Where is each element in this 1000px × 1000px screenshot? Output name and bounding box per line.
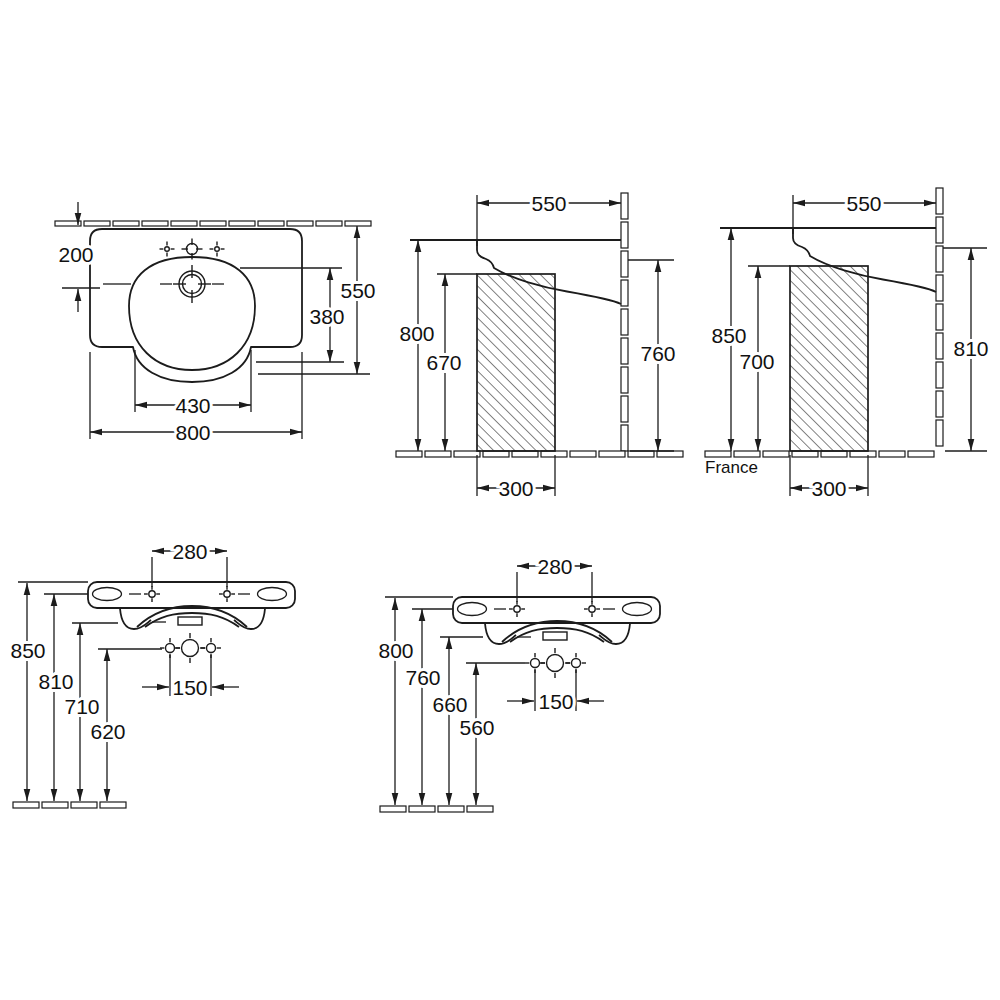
dim-connection-height-620: 620 [90,649,162,801]
dim-label-800: 800 [378,639,413,662]
syphon-space-hatch [790,266,868,451]
dim-label-550: 550 [340,279,375,302]
dim-label-150: 150 [172,676,207,699]
sink-front-body [453,597,660,623]
fixing-hole-right-icon [219,586,235,602]
dim-label-560: 560 [459,716,494,739]
dim-label-810: 810 [953,337,988,360]
dim-label-760: 760 [640,342,675,365]
view-top-plan: 200 380 550 430 800 [55,202,376,444]
dim-label-850: 850 [711,324,746,347]
dim-depth-550: 550 [477,192,621,247]
france-region-label: France [705,458,758,477]
view-side-section: 550 800 670 760 300 [396,192,683,500]
view-front-high: 280 850 810 710 620 150 [10,540,295,809]
syphon-space-hatch [477,274,555,451]
dim-label-810: 810 [38,670,73,693]
dim-back-height-810: 810 [943,248,989,451]
view-side-section-france: 550 850 700 810 300 France [705,188,989,500]
dim-label-280: 280 [172,540,207,563]
drain-boss [543,632,567,640]
dim-connection-height-560: 560 [459,663,525,805]
dim-label-200: 200 [58,243,93,266]
overflow-slot-left [458,603,487,616]
overflow-slot-left [93,588,122,601]
dim-front-height-850: 850 [711,228,746,451]
dim-label-660: 660 [432,693,467,716]
drain-boss [178,617,202,625]
dim-service-space-300: 300 [477,455,555,500]
dim-fixing-spacing-280: 280 [517,555,592,603]
fixing-hole-right-icon [584,601,600,617]
dim-back-height-760: 760 [628,260,676,451]
wall-tiles-column [936,188,943,446]
wall-tiles-column [621,193,628,451]
floor-tiles-row [705,451,934,457]
dim-label-300: 300 [498,477,533,500]
dim-clearance-height-700: 700 [739,266,774,451]
dim-label-150: 150 [538,690,573,713]
dim-label-670: 670 [426,351,461,374]
dim-basin-width-430: 430 [135,350,251,417]
dim-apron-height-710: 710 [64,623,118,801]
dim-label-550: 550 [531,192,566,215]
dim-label-800: 800 [399,322,434,345]
floor-tiles-row [396,451,683,457]
waste-center-icon [175,633,205,663]
fixing-hole-left-icon [509,601,525,617]
dim-label-300: 300 [811,477,846,500]
dim-label-710: 710 [64,695,99,718]
sink-front-body [88,582,295,608]
dim-label-700: 700 [739,350,774,373]
dim-depth-550: 550 [258,226,376,374]
floor-tiles-row [380,806,493,812]
dim-wall-distance-200: 200 [58,202,100,312]
dim-label-380: 380 [309,305,344,328]
dim-label-800: 800 [175,421,210,444]
drain-hole-icon [173,265,211,303]
waste-center-icon [540,648,570,678]
dim-front-height-800: 800 [399,240,434,451]
tap-hole-right-icon [210,242,225,257]
washbasin-dimension-drawing: 200 380 550 430 800 [0,0,1000,1000]
dim-label-430: 430 [175,394,210,417]
fixing-hole-left-icon [144,586,160,602]
dim-label-620: 620 [90,720,125,743]
dim-clearance-height-670: 670 [426,274,461,451]
overflow-slot-right [258,588,287,601]
dim-label-280: 280 [537,555,572,578]
view-front-low: 280 800 760 660 560 150 [378,555,660,813]
dim-service-space-300: 300 [790,455,868,500]
overflow-slot-right [623,603,652,616]
dim-fixing-spacing-280: 280 [152,540,227,588]
dim-label-760: 760 [405,666,440,689]
wall-tiles-row [55,221,371,226]
dim-label-550: 550 [846,192,881,215]
floor-tiles-row [13,802,126,808]
tap-hole-left-icon [160,242,175,257]
dim-label-850: 850 [10,639,45,662]
